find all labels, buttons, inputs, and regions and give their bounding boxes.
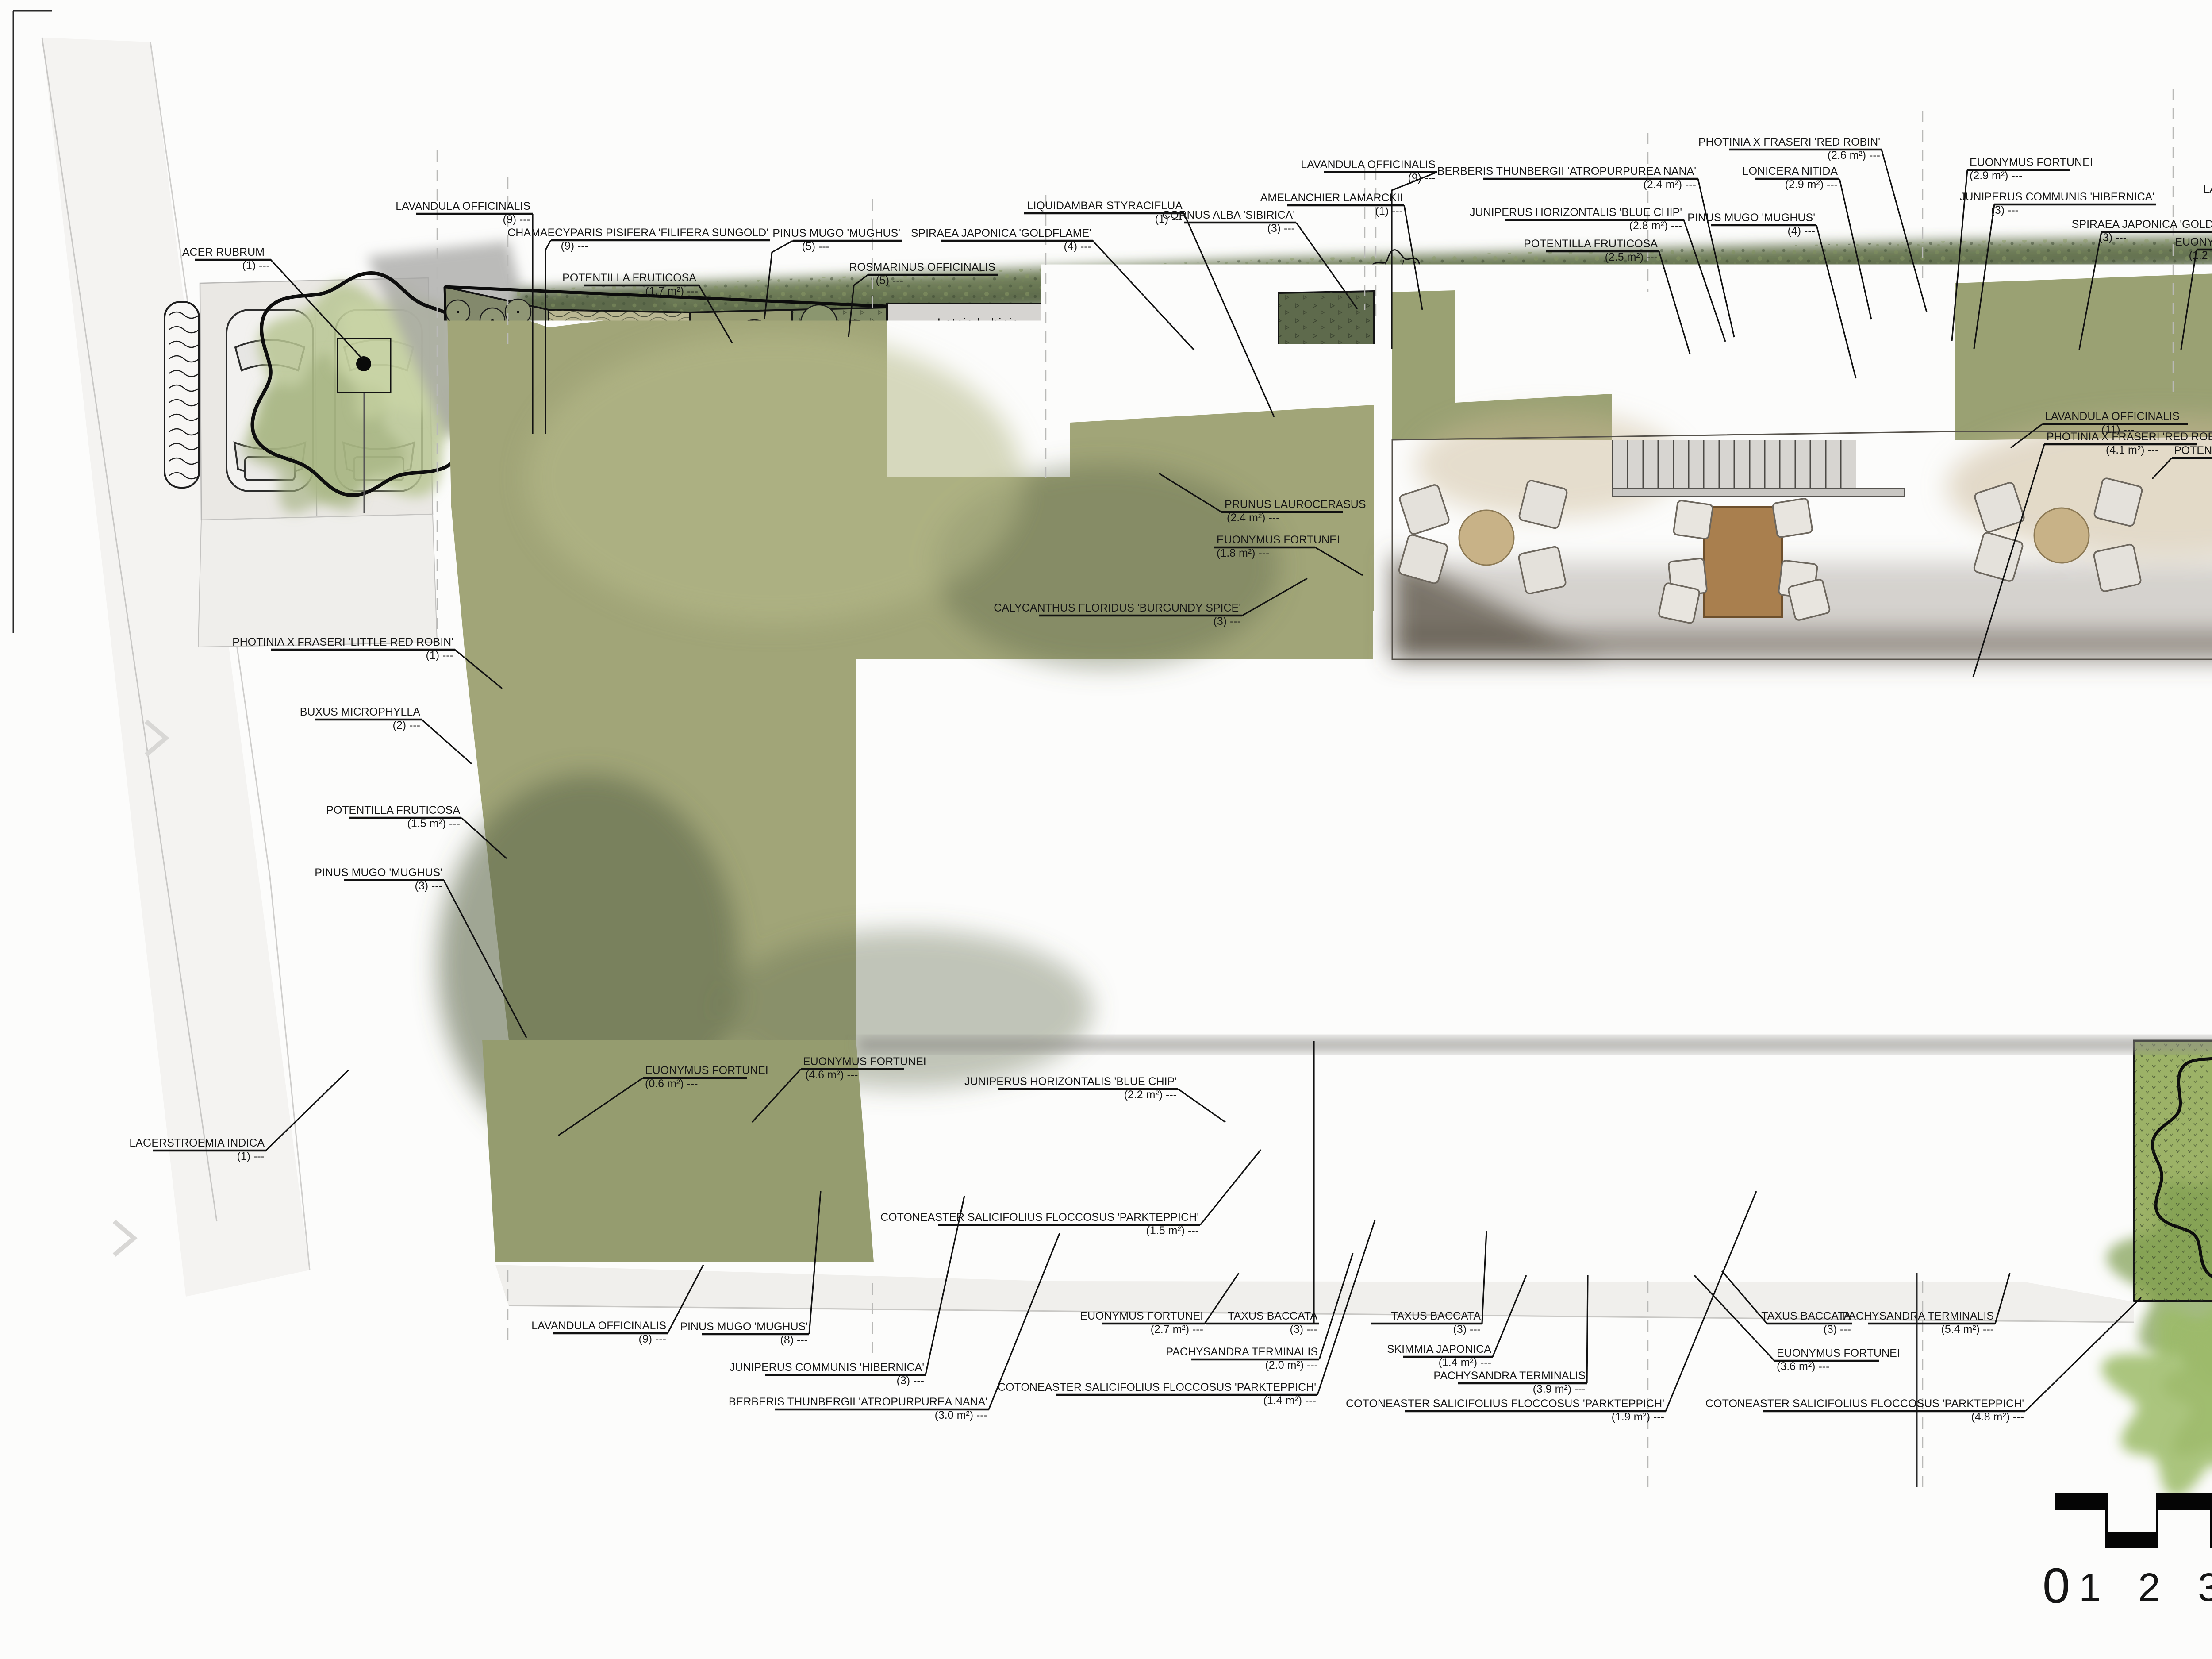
svg-text:(3) ---: (3) ---	[1824, 1323, 1851, 1336]
svg-text:(1.4 m²) ---: (1.4 m²) ---	[1439, 1356, 1491, 1369]
svg-text:POTENTILLA FRUTICOSA: POTENTILLA FRUTICOSA	[1524, 238, 1658, 250]
svg-text:(2.4 m²) ---: (2.4 m²) ---	[1227, 512, 1279, 524]
svg-text:EUONYMUS FORTUNEI: EUONYMUS FORTUNEI	[1217, 534, 1340, 546]
svg-text:JUNIPERUS HORIZONTALIS 'BLUE C: JUNIPERUS HORIZONTALIS 'BLUE CHIP'	[964, 1075, 1177, 1088]
svg-text:(4.6 m²) ---: (4.6 m²) ---	[805, 1069, 858, 1081]
svg-text:(2.2 m²) ---: (2.2 m²) ---	[1124, 1089, 1177, 1101]
svg-text:(3) ---: (3) ---	[897, 1374, 924, 1387]
svg-text:TAXUS BACCATA: TAXUS BACCATA	[1761, 1310, 1851, 1322]
svg-text:Letnja kuhinja: Letnja kuhinja	[937, 316, 1019, 331]
svg-text:CHAMAECYPARIS PISIFERA 'FILIFE: CHAMAECYPARIS PISIFERA 'FILIFERA SUNGOLD…	[507, 227, 768, 239]
svg-text:(2.9 m²) ---: (2.9 m²) ---	[1970, 169, 2022, 182]
svg-text:JUNIPERUS HORIZONTALIS 'BLUE C: JUNIPERUS HORIZONTALIS 'BLUE CHIP'	[1470, 206, 1682, 219]
svg-text:COTONEASTER SALICIFOLIUS FLOCC: COTONEASTER SALICIFOLIUS FLOCCOSUS 'PARK…	[1346, 1397, 1664, 1410]
svg-text:EUONYMUS FORTUNEI: EUONYMUS FORTUNEI	[1777, 1347, 1900, 1359]
svg-text:SPIRAEA JAPONICA 'GOLDFLAME': SPIRAEA JAPONICA 'GOLDFLAME'	[911, 227, 1091, 239]
svg-text:(1.4 m²) ---: (1.4 m²) ---	[1263, 1394, 1316, 1407]
svg-text:(2.6 m²) ---: (2.6 m²) ---	[1828, 149, 1880, 162]
svg-text:CALYCANTHUS FLORIDUS 'BURGUNDY: CALYCANTHUS FLORIDUS 'BURGUNDY SPICE'	[994, 602, 1241, 614]
svg-text:LAVANDULA OFFICINALIS: LAVANDULA OFFICINALIS	[2045, 410, 2180, 423]
svg-text:PACHYSANDRA TERMINALIS: PACHYSANDRA TERMINALIS	[1842, 1310, 1994, 1322]
svg-text:POTENTILLA FRUTICOSA: POTENTILLA FRUTICOSA	[562, 272, 696, 284]
svg-text:(1.8 m²) ---: (1.8 m²) ---	[1217, 547, 1269, 559]
svg-text:(3) ---: (3) ---	[1290, 1323, 1317, 1336]
svg-text:EUONYMUS FORTUNEI: EUONYMUS FORTUNEI	[645, 1064, 768, 1077]
svg-text:LAVANDULA OFFICINALIS: LAVANDULA OFFICINALIS	[2203, 183, 2212, 196]
svg-text:(5) ---: (5) ---	[876, 274, 903, 287]
svg-text:LAVANDULA OFFICINALIS: LAVANDULA OFFICINALIS	[396, 200, 530, 212]
svg-text:(3) ---: (3) ---	[2099, 231, 2127, 244]
svg-text:POTENTILLA FRUTICOSA: POTENTILLA FRUTICOSA	[326, 804, 460, 816]
svg-text:(2.4 m²) ---: (2.4 m²) ---	[1644, 178, 1696, 191]
svg-text:TAXUS BACCATA: TAXUS BACCATA	[1228, 1310, 1317, 1322]
svg-text:0: 0	[2043, 1558, 2070, 1613]
svg-text:LAVANDULA OFFICINALIS: LAVANDULA OFFICINALIS	[531, 1320, 666, 1332]
svg-text:(1) ---: (1) ---	[426, 649, 453, 662]
svg-text:(3.0 m²) ---: (3.0 m²) ---	[935, 1409, 987, 1421]
svg-text:(3) ---: (3) ---	[415, 880, 442, 892]
svg-text:(8) ---: (8) ---	[780, 1334, 808, 1346]
svg-text:(1) ---: (1) ---	[242, 259, 270, 272]
svg-text:JUNIPERUS COMMUNIS 'HIBERNICA': JUNIPERUS COMMUNIS 'HIBERNICA'	[1960, 191, 2154, 203]
svg-text:AMELANCHIER LAMARCKII: AMELANCHIER LAMARCKII	[1260, 192, 1403, 204]
svg-text:1: 1	[2079, 1566, 2101, 1610]
svg-text:SKIMMIA JAPONICA: SKIMMIA JAPONICA	[1387, 1343, 1491, 1355]
svg-text:BUXUS MICROPHYLLA: BUXUS MICROPHYLLA	[300, 706, 421, 718]
svg-text:PHOTINIA X FRASERI 'RED ROBIN': PHOTINIA X FRASERI 'RED ROBIN'	[1698, 136, 1880, 148]
svg-text:PINUS MUGO 'MUGHUS': PINUS MUGO 'MUGHUS'	[1687, 212, 1815, 224]
svg-text:(2) ---: (2) ---	[393, 719, 420, 731]
svg-text:EUONYMUS FORTUNEI: EUONYMUS FORTUNEI	[1080, 1310, 1203, 1322]
svg-text:(1.2 m²) ---: (1.2 m²) ---	[2189, 249, 2212, 262]
svg-text:LONICERA NITIDA: LONICERA NITIDA	[1743, 165, 1838, 177]
svg-text:(3) ---: (3) ---	[1214, 615, 1241, 627]
svg-text:PHOTINIA X FRASERI 'RED ROBIN': PHOTINIA X FRASERI 'RED ROBIN'	[2047, 431, 2212, 443]
svg-text:(1.9 m²) ---: (1.9 m²) ---	[1612, 1411, 1664, 1423]
svg-text:(9) ---: (9) ---	[503, 213, 530, 226]
svg-text:(2.0 m²) ---: (2.0 m²) ---	[1265, 1359, 1318, 1371]
svg-text:60%: 60%	[1778, 325, 1799, 337]
svg-text:PACHYSANDRA TERMINALIS: PACHYSANDRA TERMINALIS	[1433, 1370, 1586, 1382]
svg-text:EUONYMUS FORTUNEI: EUONYMUS FORTUNEI	[1970, 156, 2093, 169]
svg-text:(1.5 m²) ---: (1.5 m²) ---	[407, 817, 460, 830]
svg-text:(3) ---: (3) ---	[1453, 1323, 1481, 1336]
svg-text:(2.7 m²) ---: (2.7 m²) ---	[1151, 1323, 1203, 1336]
svg-text:EUONYMUS FORTUNEI: EUONYMUS FORTUNEI	[2175, 236, 2212, 248]
svg-text:(3) ---: (3) ---	[1991, 204, 2019, 216]
svg-text:ROSMARINUS OFFICINALIS: ROSMARINUS OFFICINALIS	[849, 261, 995, 273]
svg-text:PINUS MUGO 'MUGHUS': PINUS MUGO 'MUGHUS'	[680, 1320, 808, 1333]
svg-text:3: 3	[2198, 1566, 2212, 1610]
svg-text:PHOTINIA X FRASERI 'LITTLE RED: PHOTINIA X FRASERI 'LITTLE RED ROBIN'	[232, 636, 453, 648]
svg-text:PINUS MUGO 'MUGHUS': PINUS MUGO 'MUGHUS'	[772, 227, 900, 239]
svg-text:(2.9 m²) ---: (2.9 m²) ---	[1785, 178, 1838, 191]
svg-text:(5.4 m²) ---: (5.4 m²) ---	[1941, 1323, 1994, 1336]
svg-text:LIQUIDAMBAR STYRACIFLUA: LIQUIDAMBAR STYRACIFLUA	[1027, 200, 1183, 212]
svg-text:(4.8 m²) ---: (4.8 m²) ---	[1971, 1411, 2024, 1423]
svg-text:POTENTILLA FRUTICOSA: POTENTILLA FRUTICOSA	[2174, 444, 2212, 457]
svg-text:COTONEASTER SALICIFOLIUS FLOCC: COTONEASTER SALICIFOLIUS FLOCCOSUS 'PARK…	[880, 1211, 1199, 1224]
svg-text:TAXUS BACCATA: TAXUS BACCATA	[1391, 1310, 1481, 1322]
svg-text:CORNUS ALBA 'SIBIRICA': CORNUS ALBA 'SIBIRICA'	[1162, 209, 1295, 221]
svg-text:2: 2	[2138, 1566, 2160, 1610]
svg-text:(2.8 m²) ---: (2.8 m²) ---	[1629, 219, 1682, 232]
svg-text:PACHYSANDRA TERMINALIS: PACHYSANDRA TERMINALIS	[1166, 1346, 1318, 1358]
svg-text:(9) ---: (9) ---	[639, 1333, 666, 1345]
svg-text:(3.9 m²) ---: (3.9 m²) ---	[1533, 1383, 1586, 1395]
svg-text:JUNIPERUS COMMUNIS 'HIBERNICA': JUNIPERUS COMMUNIS 'HIBERNICA'	[730, 1361, 924, 1374]
svg-text:(4) ---: (4) ---	[1788, 225, 1815, 237]
svg-text:(4) ---: (4) ---	[1064, 240, 1091, 253]
svg-text:SPIRAEA JAPONICA 'GOLDFLAME': SPIRAEA JAPONICA 'GOLDFLAME'	[2072, 218, 2212, 231]
svg-text:PINUS MUGO 'MUGHUS': PINUS MUGO 'MUGHUS'	[315, 866, 442, 879]
svg-text:BERBERIS THUNBERGII 'ATROPURPU: BERBERIS THUNBERGII 'ATROPURPUREA NANA'	[729, 1396, 987, 1408]
svg-text:BERBERIS THUNBERGII 'ATROPURPU: BERBERIS THUNBERGII 'ATROPURPUREA NANA'	[1437, 165, 1696, 177]
svg-text:(2.5 m²) ---: (2.5 m²) ---	[1605, 251, 1658, 263]
svg-text:(4.1 m²) ---: (4.1 m²) ---	[2106, 444, 2158, 456]
svg-text:(1.5 m²) ---: (1.5 m²) ---	[1146, 1224, 1199, 1237]
svg-text:(3.6 m²) ---: (3.6 m²) ---	[1777, 1360, 1829, 1373]
svg-text:(1.7 m²) ---: (1.7 m²) ---	[645, 285, 698, 297]
svg-text:EUONYMUS FORTUNEI: EUONYMUS FORTUNEI	[803, 1055, 926, 1068]
svg-text:LAVANDULA OFFICINALIS: LAVANDULA OFFICINALIS	[1301, 158, 1436, 171]
svg-text:COTONEASTER SALICIFOLIUS FLOCC: COTONEASTER SALICIFOLIUS FLOCCOSUS 'PARK…	[1705, 1397, 2024, 1410]
svg-text:PRUNUS LAUROCERASUS: PRUNUS LAUROCERASUS	[1225, 498, 1366, 511]
svg-text:(5) ---: (5) ---	[802, 240, 829, 253]
svg-text:(0.6 m²) ---: (0.6 m²) ---	[645, 1078, 698, 1090]
svg-text:(1) ---: (1) ---	[237, 1150, 265, 1162]
svg-text:(1) ---: (1) ---	[1375, 205, 1403, 217]
svg-text:ACER RUBRUM: ACER RUBRUM	[182, 246, 265, 258]
svg-text:LAGERSTROEMIA INDICA: LAGERSTROEMIA INDICA	[129, 1137, 265, 1149]
svg-text:COTONEASTER SALICIFOLIUS FLOCC: COTONEASTER SALICIFOLIUS FLOCCOSUS 'PARK…	[998, 1381, 1316, 1393]
svg-text:(9) ---: (9) ---	[561, 240, 588, 252]
svg-text:(3) ---: (3) ---	[1267, 222, 1295, 235]
